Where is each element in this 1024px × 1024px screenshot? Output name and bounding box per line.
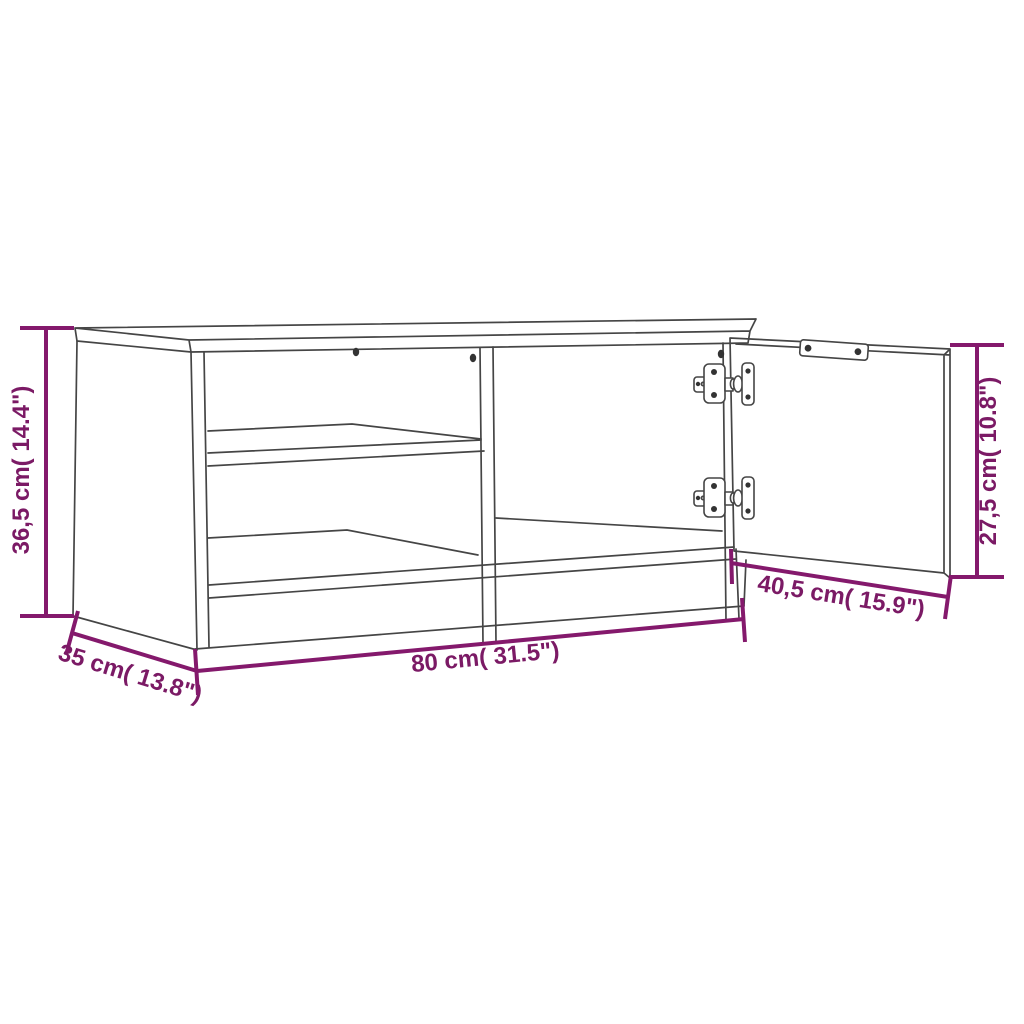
hinge-icon — [694, 477, 754, 519]
diagram-canvas: 36,5 cm( 14.4") 35 cm( 13.8") 80 cm( 31.… — [0, 0, 1024, 1024]
front-edge-strips — [204, 343, 746, 647]
bottom-panel-interior — [208, 518, 722, 555]
base-front-band — [195, 547, 744, 649]
dimension-height-label: 36,5 cm( 14.4") — [8, 386, 35, 555]
screw-icon — [718, 350, 724, 358]
screw-icon — [470, 354, 476, 362]
dimension-height: 36,5 cm( 14.4") — [8, 328, 74, 616]
dimension-width-label: 80 cm( 31.5") — [410, 637, 561, 678]
left-side-panel — [73, 341, 197, 650]
screw-icon — [353, 348, 359, 356]
door-mounting-plate — [800, 340, 869, 361]
dimension-door-width: 40,5 cm( 15.9") — [731, 549, 951, 623]
dimension-door-width-label: 40,5 cm( 15.9") — [756, 570, 927, 623]
dimension-door-height: 27,5 cm( 10.8") — [950, 345, 1004, 577]
top-panel-outline — [75, 319, 756, 352]
dimension-diagram-svg: 36,5 cm( 14.4") 35 cm( 13.8") 80 cm( 31.… — [0, 0, 1024, 1024]
open-door — [730, 338, 950, 578]
hinge-icon — [694, 363, 754, 405]
dimension-depth: 35 cm( 13.8") — [55, 611, 205, 708]
middle-shelf — [208, 424, 484, 466]
dimension-door-height-label: 27,5 cm( 10.8") — [975, 377, 1002, 546]
